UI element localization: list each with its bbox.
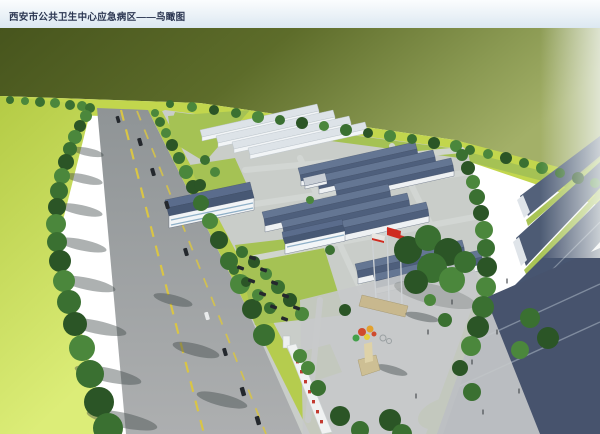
haze-overlay [540,28,600,258]
page-title: 西安市公共卫生中心应急病区——鸟瞰图 [9,11,185,23]
rendering-image: 西安市公共卫生中心应急病区——鸟瞰图 [0,0,600,434]
aerial-scene: 西安市公共卫生中心应急病区——鸟瞰图 [0,0,600,434]
